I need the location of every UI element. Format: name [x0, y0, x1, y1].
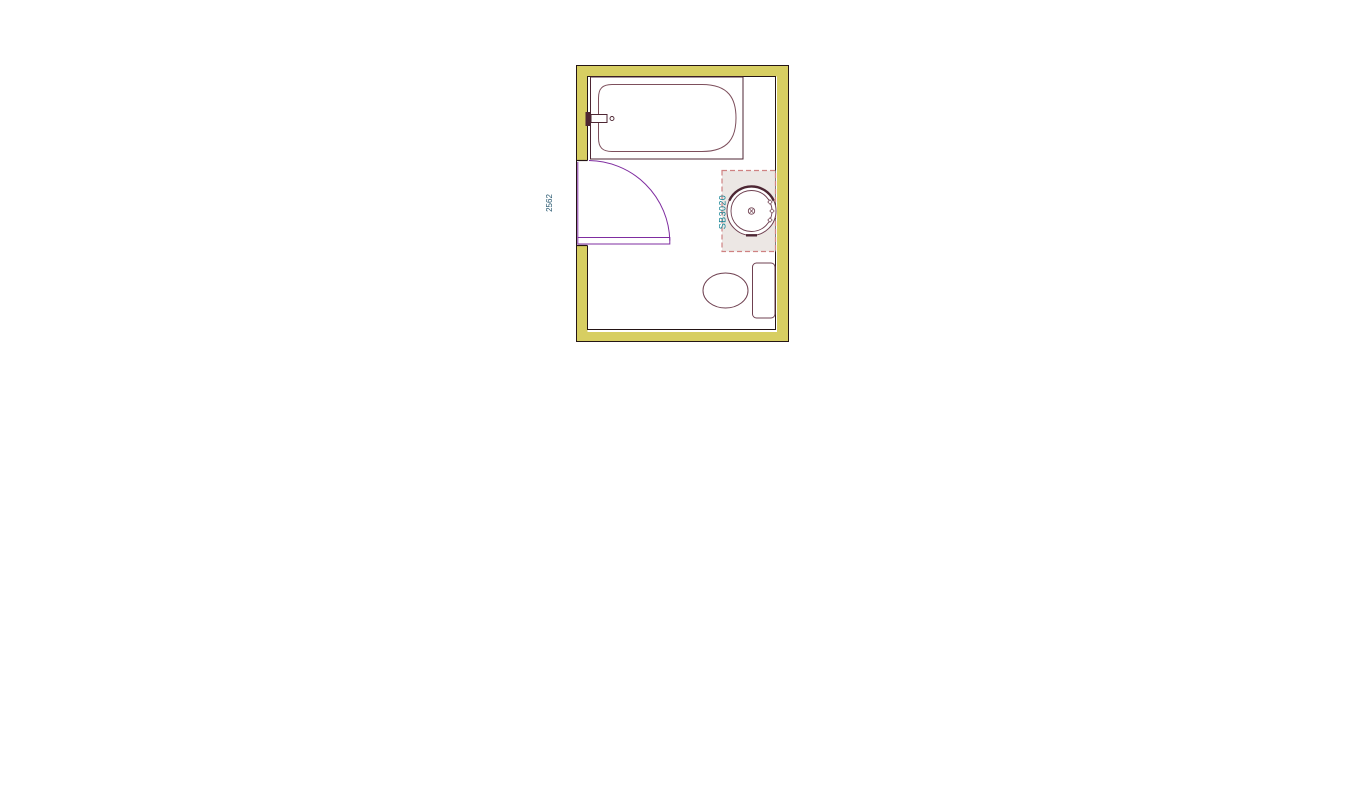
faucet-handle-icon — [610, 117, 614, 121]
toilet-cistern — [753, 263, 776, 318]
room-dimension-label: 2562 — [546, 194, 554, 212]
door-group — [578, 161, 670, 245]
washbasin-product-label: SB3020 — [718, 194, 727, 228]
wall-left-lower-fill — [577, 246, 588, 341]
toilet-bowl — [703, 273, 748, 308]
wall-right-fill — [777, 77, 788, 342]
floor-plan: SB3020 — [576, 65, 789, 342]
faucet-spout-icon — [591, 115, 607, 123]
door-swing-arc — [589, 161, 670, 241]
faucet-valve-icon — [586, 112, 592, 126]
page-canvas: SB3020 2562 — [0, 0, 1360, 785]
wall-bottom-fill — [577, 332, 788, 341]
toilet-group — [703, 263, 775, 318]
door-leaf — [578, 238, 670, 245]
washbasin-group — [722, 171, 776, 252]
wall-top-fill — [577, 66, 788, 77]
bathtub-outline — [599, 85, 737, 152]
floor-plan-drawing — [576, 65, 789, 342]
bathtub-group — [586, 77, 744, 159]
